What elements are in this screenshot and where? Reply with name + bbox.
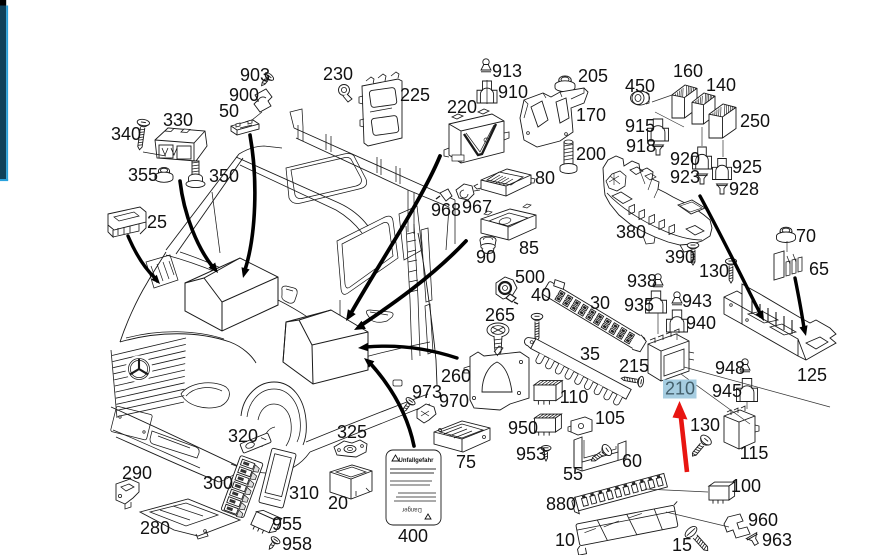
svg-text:10: 10: [555, 530, 575, 550]
svg-text:880: 880: [546, 494, 576, 514]
svg-text:140: 140: [706, 75, 736, 95]
svg-text:320: 320: [228, 426, 258, 446]
svg-text:948: 948: [715, 358, 745, 378]
svg-text:400: 400: [398, 526, 428, 546]
svg-text:125: 125: [797, 365, 827, 385]
svg-text:310: 310: [289, 483, 319, 503]
svg-text:973: 973: [412, 382, 442, 402]
svg-text:968: 968: [431, 200, 461, 220]
svg-text:260: 260: [441, 366, 471, 386]
svg-text:65: 65: [809, 259, 829, 279]
svg-text:50: 50: [219, 101, 239, 121]
svg-text:220: 220: [447, 97, 477, 117]
svg-text:20: 20: [328, 493, 348, 513]
svg-text:955: 955: [272, 514, 302, 534]
svg-text:390: 390: [665, 247, 695, 267]
svg-text:75: 75: [456, 452, 476, 472]
svg-text:130: 130: [699, 261, 729, 281]
svg-text:958: 958: [282, 534, 312, 554]
svg-text:Unfallgefahr: Unfallgefahr: [398, 458, 434, 464]
svg-text:945: 945: [712, 381, 742, 401]
svg-text:100: 100: [731, 476, 761, 496]
svg-text:325: 325: [337, 422, 367, 442]
svg-text:340: 340: [111, 124, 141, 144]
svg-text:380: 380: [616, 222, 646, 242]
svg-text:250: 250: [740, 111, 770, 131]
svg-text:940: 940: [686, 313, 716, 333]
svg-text:943: 943: [682, 291, 712, 311]
svg-text:60: 60: [622, 451, 642, 471]
svg-text:205: 205: [578, 66, 608, 86]
svg-text:960: 960: [748, 510, 778, 530]
svg-text:80: 80: [535, 168, 555, 188]
svg-text:230: 230: [323, 64, 353, 84]
svg-text:55: 55: [563, 464, 583, 484]
svg-text:300: 300: [203, 473, 233, 493]
svg-text:500: 500: [515, 267, 545, 287]
svg-text:913: 913: [492, 61, 522, 81]
svg-text:355: 355: [128, 165, 158, 185]
svg-text:450: 450: [625, 76, 655, 96]
svg-text:225: 225: [400, 85, 430, 105]
svg-text:953: 953: [516, 444, 546, 464]
svg-text:928: 928: [729, 179, 759, 199]
svg-text:130: 130: [690, 415, 720, 435]
svg-text:935: 935: [624, 295, 654, 315]
svg-text:970: 970: [439, 391, 469, 411]
svg-text:920: 920: [670, 149, 700, 169]
svg-text:70: 70: [796, 226, 816, 246]
svg-text:910: 910: [498, 82, 528, 102]
svg-text:25: 25: [147, 212, 167, 232]
svg-text:90: 90: [476, 247, 496, 267]
svg-text:200: 200: [576, 144, 606, 164]
svg-text:915: 915: [625, 116, 655, 136]
svg-text:265: 265: [485, 305, 515, 325]
svg-text:170: 170: [576, 105, 606, 125]
svg-text:210: 210: [665, 379, 695, 399]
svg-text:40: 40: [531, 285, 551, 305]
svg-text:950: 950: [508, 418, 538, 438]
svg-text:938: 938: [627, 271, 657, 291]
svg-text:Danger: Danger: [402, 506, 422, 512]
svg-text:963: 963: [762, 530, 792, 550]
svg-text:30: 30: [590, 293, 610, 313]
svg-text:105: 105: [595, 408, 625, 428]
svg-text:903: 903: [240, 65, 270, 85]
svg-text:35: 35: [580, 344, 600, 364]
svg-text:290: 290: [122, 463, 152, 483]
svg-text:85: 85: [519, 238, 539, 258]
svg-text:918: 918: [626, 136, 656, 156]
svg-text:115: 115: [740, 443, 769, 463]
svg-text:925: 925: [732, 157, 762, 177]
svg-text:15: 15: [672, 535, 692, 555]
svg-text:330: 330: [163, 110, 193, 130]
svg-text:215: 215: [619, 356, 649, 376]
svg-text:280: 280: [140, 518, 170, 538]
svg-text:110: 110: [560, 387, 589, 407]
svg-text:923: 923: [670, 167, 700, 187]
svg-text:350: 350: [209, 166, 239, 186]
svg-text:160: 160: [673, 61, 703, 81]
